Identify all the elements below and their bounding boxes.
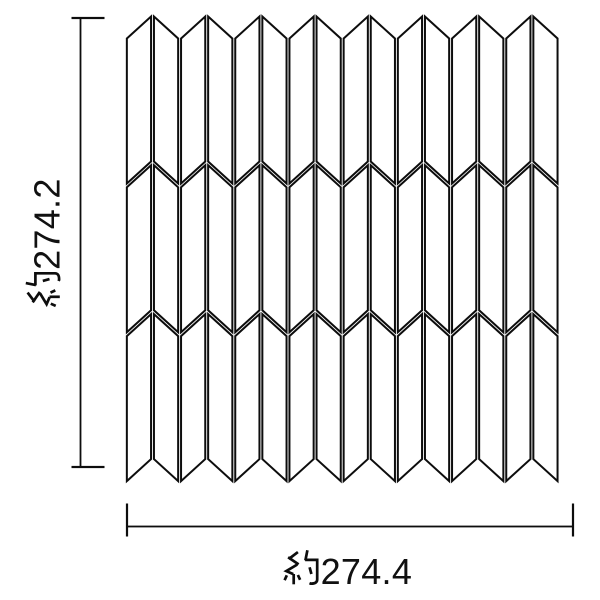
svg-text:274.4: 274.4 xyxy=(321,551,413,592)
svg-text:274.2: 274.2 xyxy=(27,178,68,270)
